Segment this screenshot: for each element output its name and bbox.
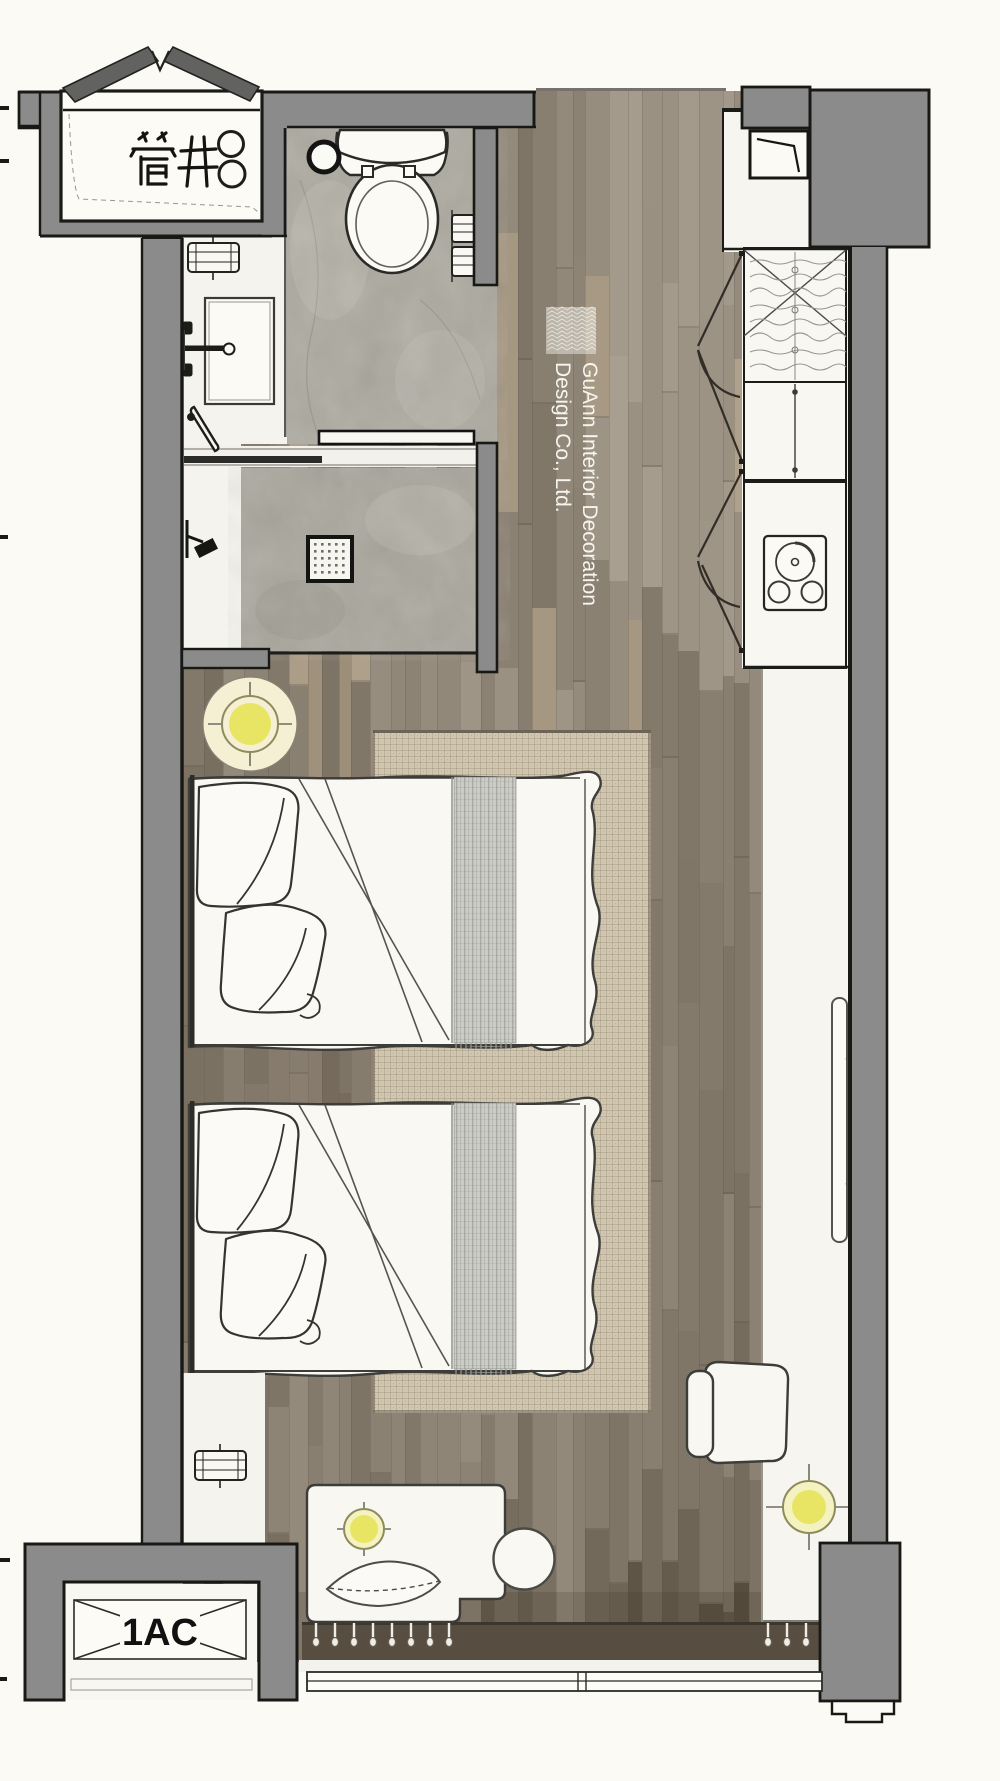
svg-text:GuAnn Interior Decoration: GuAnn Interior Decoration [578, 362, 601, 606]
svg-text:1AC: 1AC [122, 1612, 198, 1654]
svg-text:Design Co., Ltd.: Design Co., Ltd. [551, 362, 574, 513]
